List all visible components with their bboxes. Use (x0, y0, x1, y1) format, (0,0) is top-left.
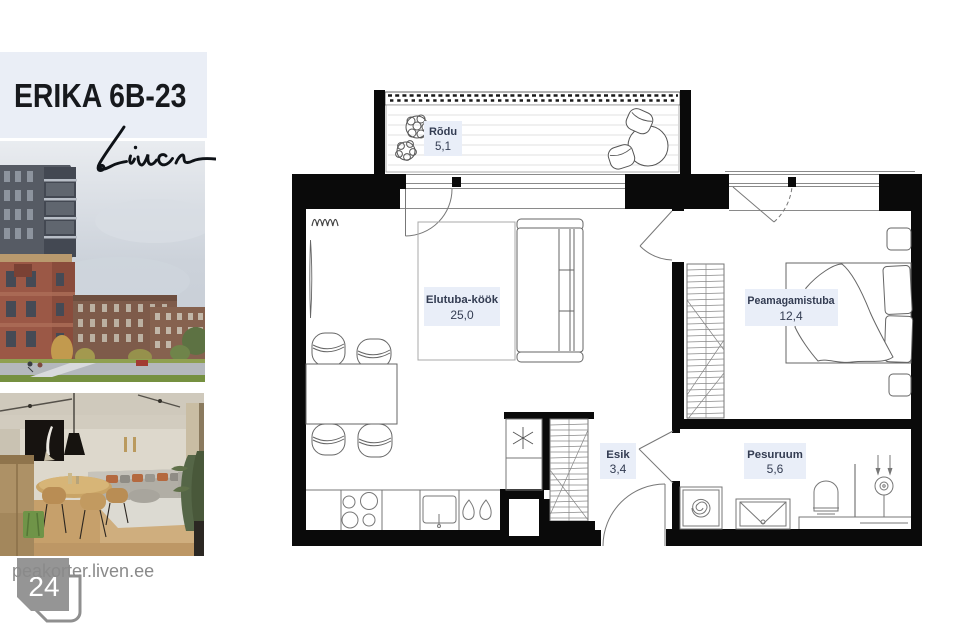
svg-text:Peamagamistuba: Peamagamistuba (747, 295, 834, 307)
svg-text:25,0: 25,0 (450, 308, 474, 322)
svg-text:Elutuba-köök: Elutuba-köök (426, 294, 499, 306)
svg-text:Rõdu: Rõdu (429, 126, 457, 138)
svg-text:Pesuruum: Pesuruum (747, 449, 803, 461)
svg-text:Esik: Esik (606, 449, 630, 461)
svg-text:12,4: 12,4 (779, 309, 803, 323)
svg-text:3,4: 3,4 (610, 462, 627, 476)
svg-text:5,1: 5,1 (435, 141, 451, 153)
svg-text:5,6: 5,6 (767, 462, 784, 476)
